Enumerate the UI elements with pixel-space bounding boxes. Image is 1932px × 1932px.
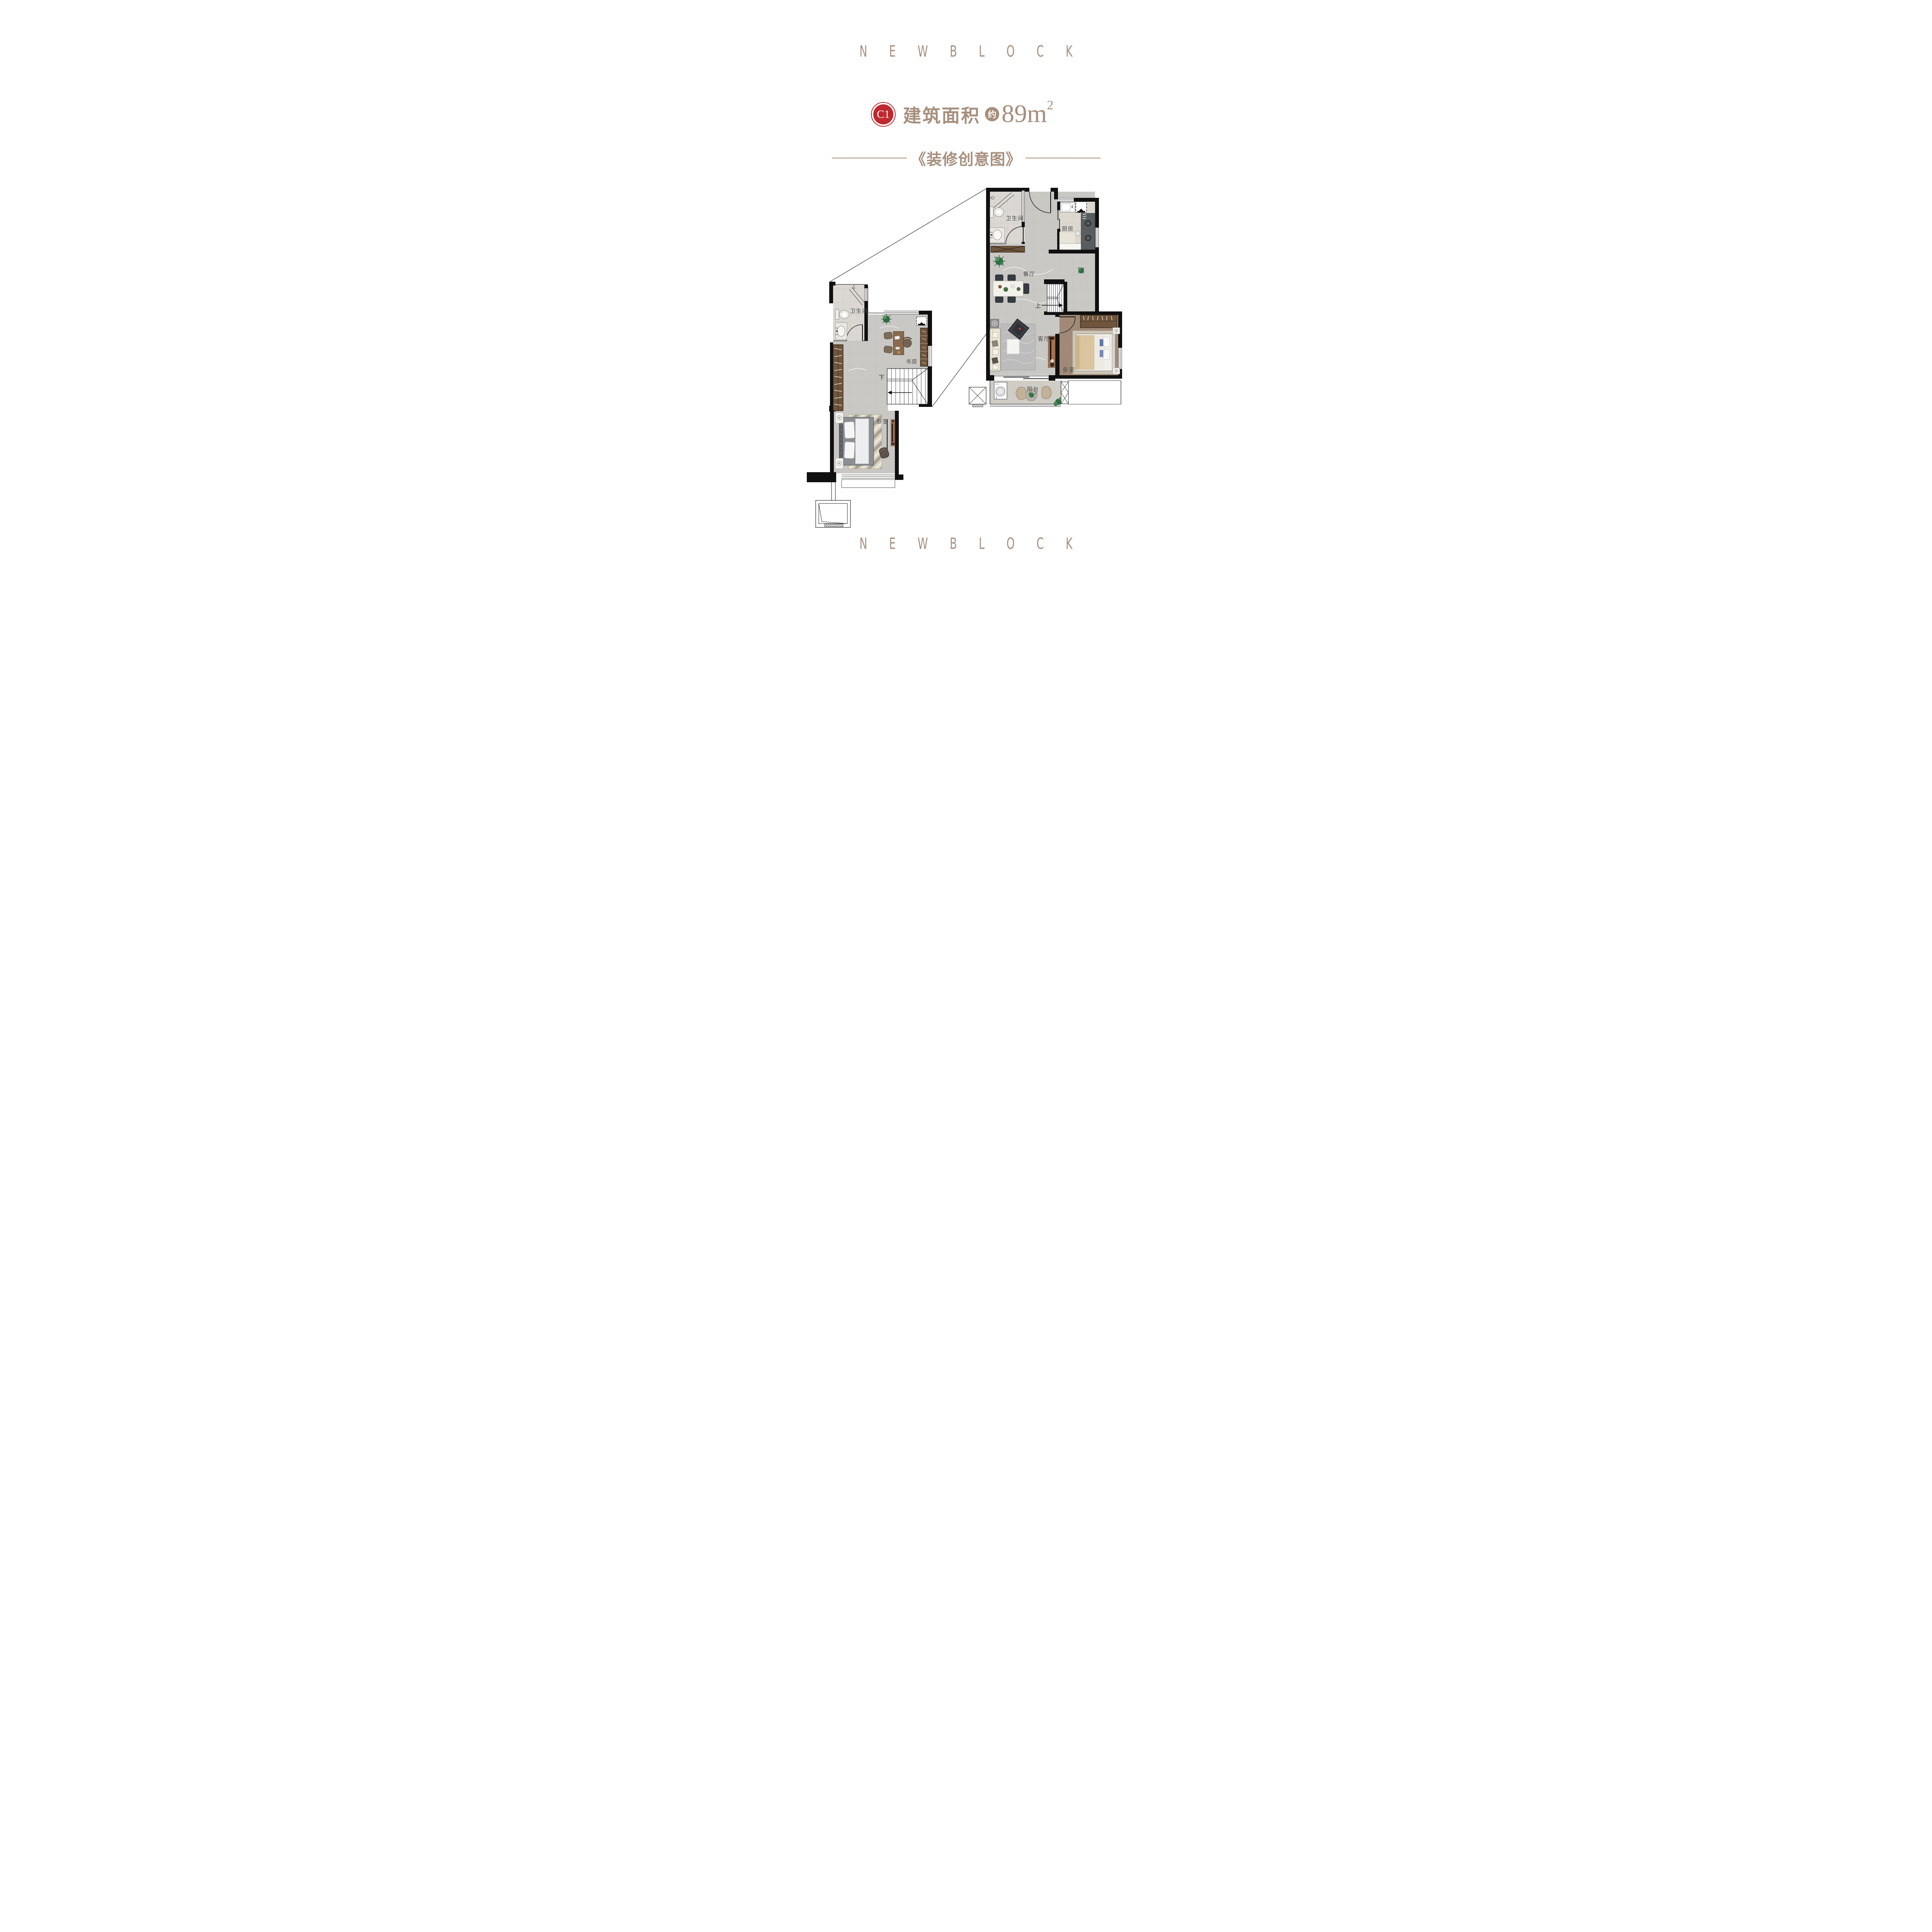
fridge-symbol bbox=[1076, 202, 1087, 213]
stairs-up-label: 上 bbox=[1035, 302, 1042, 309]
bookshelf bbox=[920, 328, 928, 366]
lower-bedroom-label: 卧室 bbox=[877, 418, 889, 425]
lower-floor-plan: 卫生间 书房 卧室 下 bbox=[807, 282, 932, 527]
ac-panel-right bbox=[1061, 382, 1068, 404]
study-label: 书房 bbox=[906, 359, 918, 365]
bed-lower bbox=[839, 417, 874, 465]
balcony-label: 阳台 bbox=[1027, 386, 1039, 393]
stairs-down-label: 下 bbox=[879, 374, 885, 381]
kitchen-sink bbox=[1060, 202, 1075, 212]
floor-plans-svg: 卫生间 厨房 餐厅 客厅 卧室 阳台 上 bbox=[771, 0, 1161, 560]
sofa bbox=[990, 328, 1000, 371]
bed-upper bbox=[1076, 334, 1115, 371]
upper-bedroom-label: 卧室 bbox=[1063, 367, 1075, 373]
lower-stairs bbox=[887, 369, 928, 404]
water-heater-symbol bbox=[917, 317, 927, 325]
upper-bathroom-label: 卫生间 bbox=[1006, 216, 1024, 222]
upper-kitchen-label: 厨房 bbox=[1062, 226, 1074, 232]
guest-chair bbox=[884, 332, 893, 339]
guest-chair bbox=[884, 346, 893, 353]
flyer-page: N E W B L O C K C1 建筑面积 约 89 m 2 《装修创意图》 bbox=[771, 0, 1161, 560]
lower-bathroom-label: 卫生间 bbox=[850, 308, 868, 315]
plant-dining bbox=[993, 255, 1005, 267]
washing-machine bbox=[994, 382, 1007, 399]
upper-dining-label: 餐厅 bbox=[1023, 271, 1035, 277]
ac-platform bbox=[816, 482, 850, 527]
side-table-speaker bbox=[990, 319, 999, 328]
upper-living-label: 客厅 bbox=[1038, 336, 1050, 342]
wardrobe bbox=[1080, 315, 1117, 328]
plant-kitchen-corner bbox=[1078, 267, 1084, 274]
upper-floor-plan: 卫生间 厨房 餐厅 客厅 卧室 阳台 上 bbox=[969, 188, 1122, 407]
plant-study bbox=[881, 314, 892, 325]
brand-bottom: N E W B L O C K bbox=[771, 535, 1161, 553]
office-chair bbox=[903, 339, 912, 347]
hall-wardrobe bbox=[833, 345, 843, 411]
tv-console-lower bbox=[891, 420, 895, 446]
window-bay-strip bbox=[842, 480, 895, 488]
duct-shaft bbox=[969, 387, 986, 407]
